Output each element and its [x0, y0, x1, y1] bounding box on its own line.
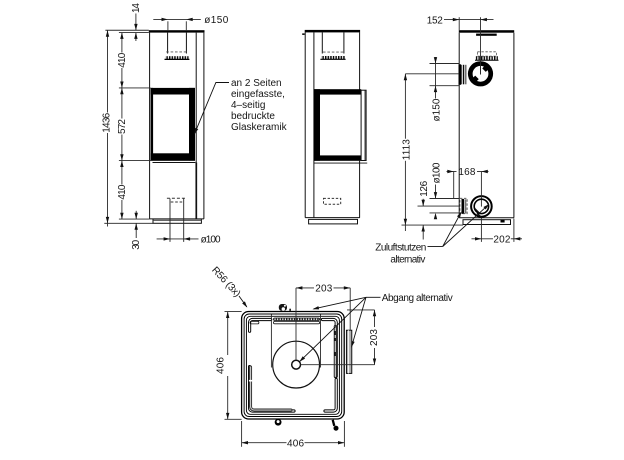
svg-text:203: 203	[369, 329, 380, 346]
svg-text:Glaskeramik: Glaskeramik	[231, 122, 288, 133]
svg-text:410: 410	[117, 184, 128, 199]
svg-text:Abgang alternativ: Abgang alternativ	[382, 293, 453, 304]
svg-text:406: 406	[215, 357, 226, 374]
svg-text:1113: 1113	[401, 139, 412, 160]
svg-text:eingefasste,: eingefasste,	[231, 89, 285, 100]
svg-text:14: 14	[131, 3, 142, 13]
svg-text:168: 168	[458, 167, 475, 178]
svg-text:152: 152	[427, 15, 443, 26]
svg-text:202: 202	[493, 234, 510, 245]
svg-text:bedruckte: bedruckte	[231, 111, 275, 122]
svg-text:410: 410	[117, 52, 128, 67]
svg-text:ø100: ø100	[431, 162, 442, 183]
svg-text:4–seitig: 4–seitig	[231, 100, 265, 111]
svg-text:406: 406	[287, 438, 304, 449]
svg-text:an 2 Seiten: an 2 Seiten	[231, 78, 282, 89]
svg-text:alternativ: alternativ	[390, 254, 425, 265]
svg-text:Zuluftstutzen: Zuluftstutzen	[375, 242, 426, 253]
svg-text:572: 572	[117, 119, 128, 134]
svg-text:ø150: ø150	[204, 15, 228, 26]
svg-text:1436: 1436	[101, 112, 112, 132]
svg-text:ø100: ø100	[201, 234, 221, 245]
svg-text:203: 203	[315, 284, 332, 295]
svg-text:126: 126	[419, 180, 430, 196]
svg-text:30: 30	[131, 239, 142, 249]
svg-text:ø150: ø150	[431, 98, 442, 121]
